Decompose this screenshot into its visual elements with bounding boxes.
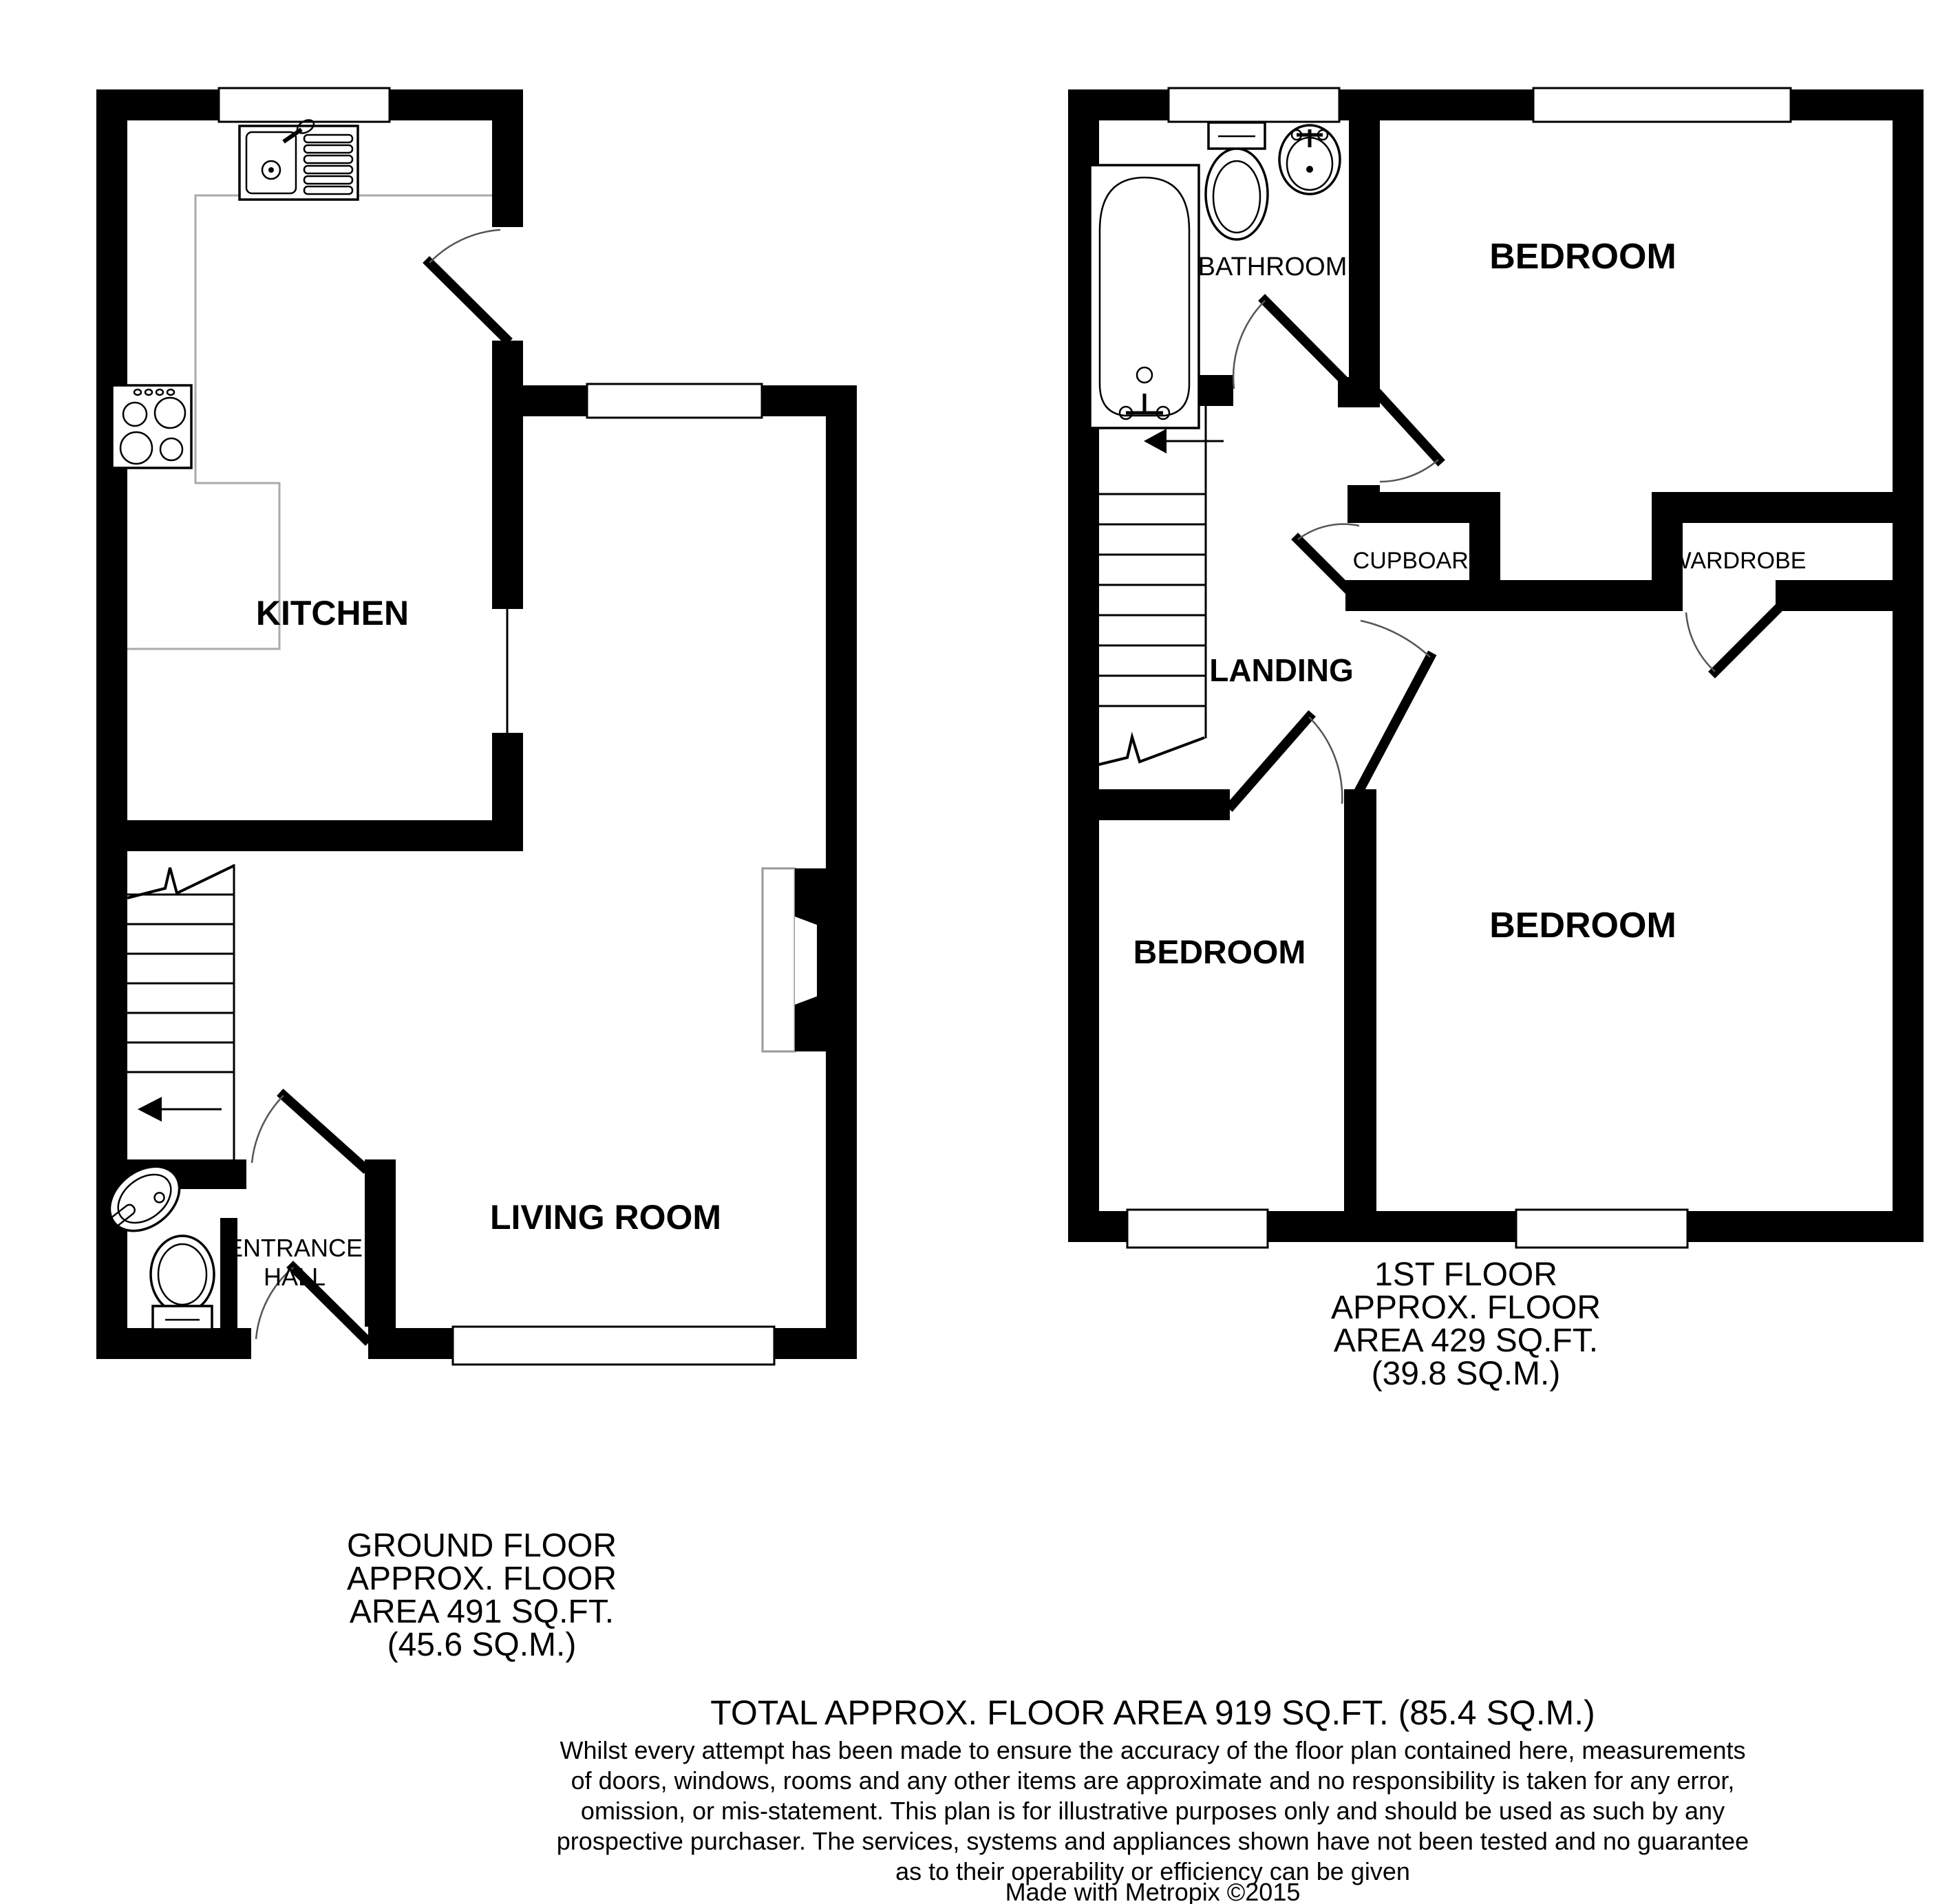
wall <box>492 416 523 609</box>
wardrobe-door-arc <box>1686 612 1715 672</box>
ground-floor-windows <box>219 88 774 1365</box>
kitchen-window <box>219 88 390 122</box>
stair-break-line <box>127 866 234 898</box>
caption-line: GROUND FLOOR <box>347 1528 617 1564</box>
wall <box>1068 789 1230 820</box>
pedestal-basin-icon <box>1279 125 1340 194</box>
wall <box>492 89 523 227</box>
stair-direction-arrow-icon <box>1144 429 1224 453</box>
kitchen-label: KITCHEN <box>256 594 409 632</box>
bedroom-right-window <box>1516 1210 1687 1248</box>
wall <box>1893 89 1924 1242</box>
bedroom-right-label: BEDROOM <box>1489 906 1676 945</box>
stair-treads <box>127 895 234 1072</box>
bathroom-door-leaf <box>1265 301 1342 378</box>
bedroom-right-door-arc <box>1361 621 1430 657</box>
stair-treads <box>1099 494 1206 706</box>
bedroom-top-window <box>1533 88 1791 122</box>
caption-line: (45.6 SQ.M.) <box>387 1627 577 1663</box>
kitchen-door-leaf <box>429 263 506 339</box>
bathroom-window <box>1169 88 1339 122</box>
wall <box>96 820 492 851</box>
caption-line: APPROX. FLOOR <box>347 1561 617 1597</box>
caption-line: APPROX. FLOOR <box>1331 1290 1601 1326</box>
cupboard-door-arc <box>1298 524 1359 539</box>
wardrobe-label: WARDROBE <box>1670 548 1807 574</box>
stair-direction-arrow-icon <box>138 1097 222 1122</box>
wall <box>1349 89 1380 377</box>
caption-line: 1ST FLOOR <box>1374 1256 1557 1293</box>
staircase-ground <box>127 864 234 1159</box>
bedroom-left-window <box>1127 1210 1268 1248</box>
caption-line: (39.8 SQ.M.) <box>1372 1356 1561 1392</box>
living-room-door-leaf <box>284 1095 363 1167</box>
cooker-hob-icon <box>112 385 191 468</box>
fireplace-icon <box>763 868 835 1051</box>
kitchen-sink-icon <box>239 118 358 200</box>
bedroom-right-door-leaf <box>1361 657 1430 788</box>
entrance-hall-label-line2: HALL <box>264 1263 326 1291</box>
wall <box>1345 580 1683 611</box>
floor-plan-drawing: KITCHEN LIVING ROOM ENTRANCE HALL <box>0 0 1949 1904</box>
bedroom-left-label: BEDROOM <box>1133 934 1306 971</box>
first-floor-plan: BATHROOM BEDROOM CUPBOARD WARDROBE LANDI… <box>1068 88 1924 1248</box>
disclaimer-line: of doors, windows, rooms and any other i… <box>571 1766 1735 1795</box>
floor-plan-page: KITCHEN LIVING ROOM ENTRANCE HALL <box>0 0 1949 1904</box>
wall <box>492 733 523 851</box>
bathroom-door-arc <box>1233 301 1265 389</box>
bathroom-label: BATHROOM <box>1198 253 1348 281</box>
entrance-hall-label-line1: ENTRANCE <box>226 1234 363 1262</box>
kitchen-door-arc <box>429 230 500 263</box>
ground-floor-walls <box>96 89 857 1360</box>
wall <box>1776 580 1893 611</box>
first-floor-caption: 1ST FLOOR APPROX. FLOOR AREA 429 SQ.FT. … <box>1331 1256 1601 1392</box>
landing-label: LANDING <box>1209 652 1354 688</box>
caption-line: AREA 491 SQ.FT. <box>350 1594 614 1630</box>
bedroom-top-door-leaf <box>1380 396 1438 460</box>
wall <box>1652 492 1893 523</box>
front-door-opening <box>251 1327 368 1360</box>
living-room-top-window <box>587 384 762 418</box>
metropix-credit: Made with Metropix ©2015 <box>1005 1878 1301 1904</box>
caption-line: AREA 429 SQ.FT. <box>1334 1323 1598 1359</box>
cupboard-label: CUPBOARD <box>1353 548 1486 574</box>
bedroom-top-label: BEDROOM <box>1489 237 1676 277</box>
toilet-icon <box>1206 122 1268 239</box>
cupboard-door-leaf <box>1298 539 1353 595</box>
living-room-door-arc <box>252 1095 284 1163</box>
disclaimer-line: Whilst every attempt has been made to en… <box>560 1736 1746 1764</box>
ground-floor-plan: KITCHEN LIVING ROOM ENTRANCE HALL <box>94 88 857 1365</box>
total-area-line: TOTAL APPROX. FLOOR AREA 919 SQ.FT. (85.… <box>710 1693 1595 1732</box>
wall <box>365 1159 396 1359</box>
bedroom-left-door-leaf <box>1232 717 1309 805</box>
bath-tub-icon <box>1090 165 1199 428</box>
disclaimer-block: Whilst every attempt has been made to en… <box>557 1736 1749 1885</box>
disclaimer-line: prospective purchaser. The services, sys… <box>557 1827 1749 1855</box>
living-room-bottom-window <box>453 1327 774 1365</box>
ground-floor-caption: GROUND FLOOR APPROX. FLOOR AREA 491 SQ.F… <box>347 1528 617 1663</box>
disclaimer-line: omission, or mis-statement. This plan is… <box>581 1797 1725 1825</box>
wardrobe-door-leaf <box>1715 611 1776 672</box>
bedroom-left-door-arc <box>1309 717 1342 804</box>
living-room-label: LIVING ROOM <box>490 1198 721 1237</box>
wall <box>1344 789 1376 1242</box>
bedroom-top-door-arc <box>1380 460 1438 482</box>
wc-toilet-icon <box>151 1236 214 1329</box>
